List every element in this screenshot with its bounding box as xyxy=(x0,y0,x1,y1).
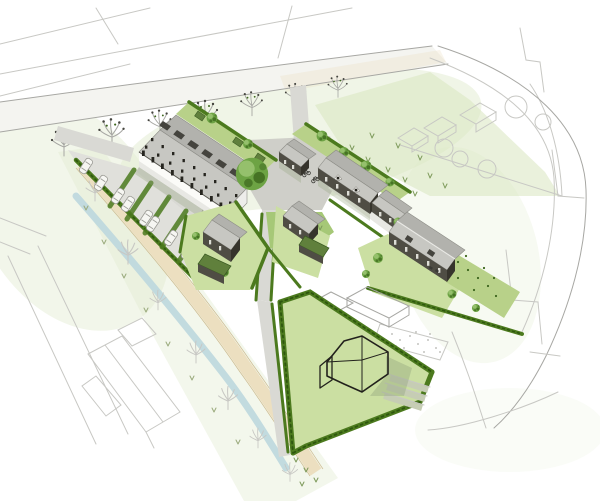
masterplan-illustration xyxy=(0,0,600,501)
site-plan-svg xyxy=(0,0,600,501)
plaza-tree xyxy=(236,158,268,190)
